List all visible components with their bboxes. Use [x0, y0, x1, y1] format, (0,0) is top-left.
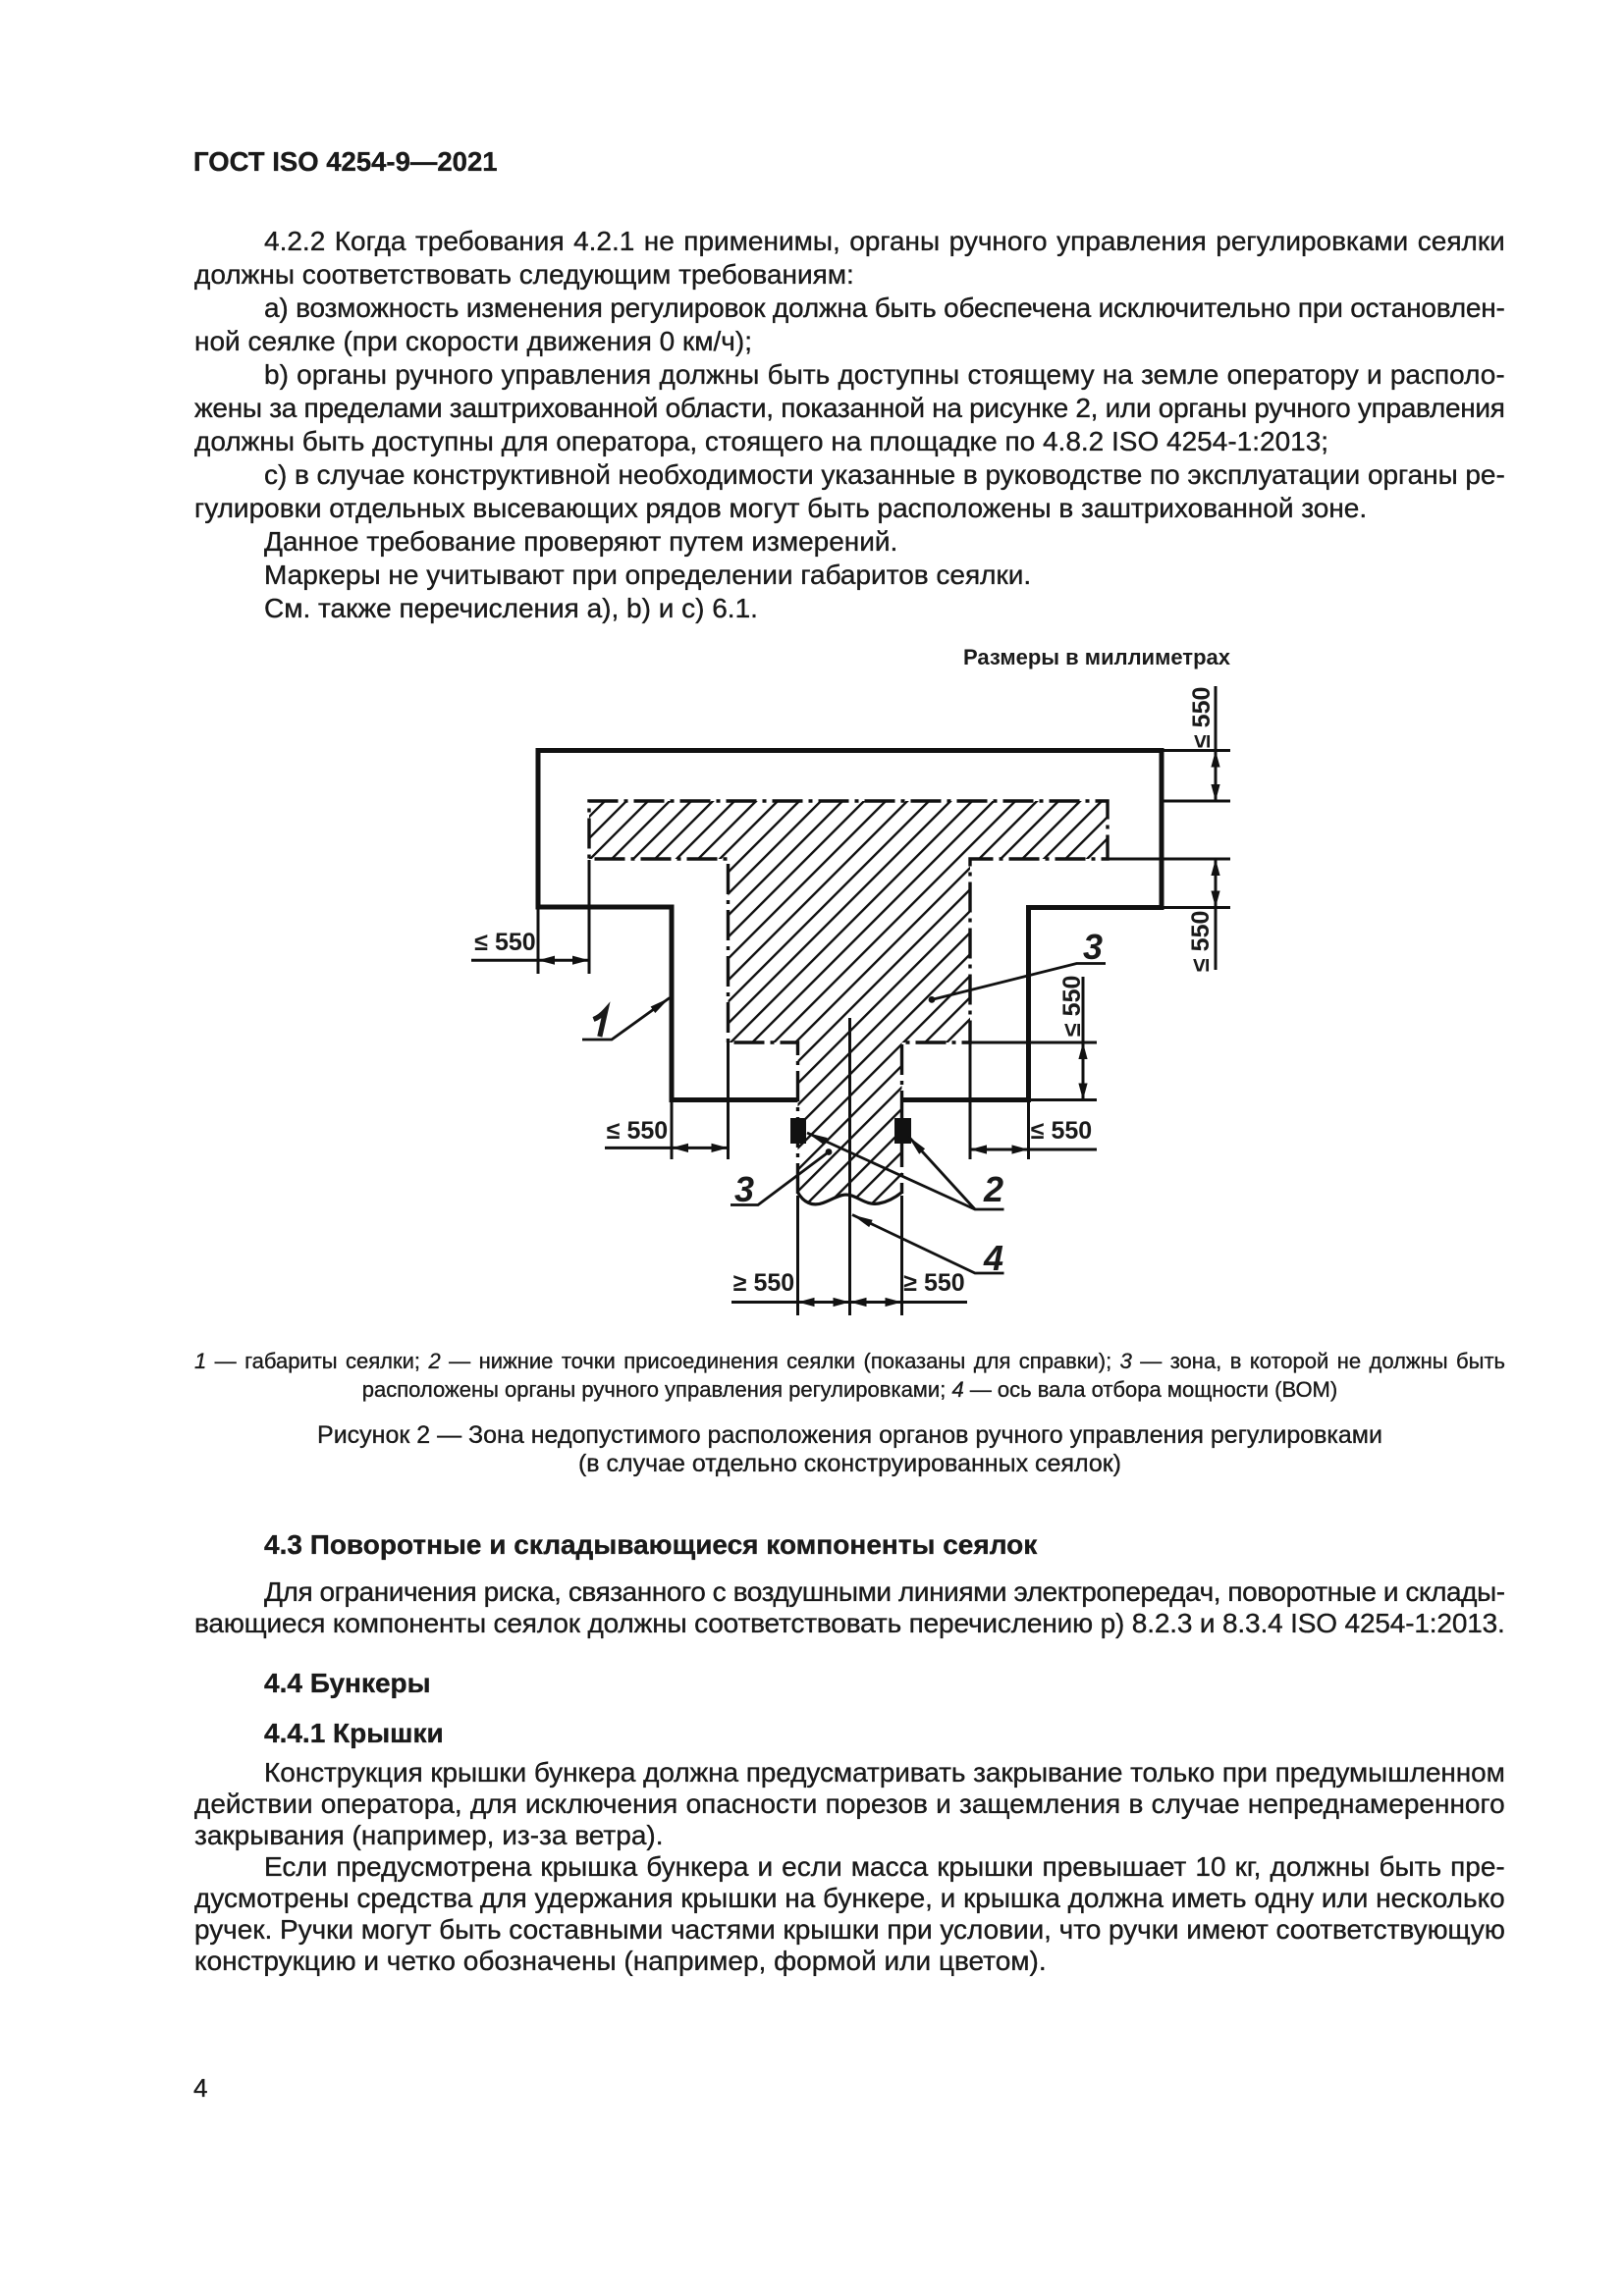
- svg-text:≤ 550: ≤ 550: [607, 1117, 668, 1145]
- svg-text:2: 2: [983, 1169, 1003, 1209]
- svg-text:≤ 550: ≤ 550: [474, 929, 535, 956]
- svg-text:Размеры в миллиметрах: Размеры в миллиметрах: [963, 645, 1231, 669]
- svg-text:4: 4: [983, 1238, 1003, 1278]
- svg-text:≤ 550: ≤ 550: [1031, 1117, 1092, 1145]
- svg-text:≤ 550: ≤ 550: [1187, 911, 1215, 972]
- svg-text:3: 3: [1083, 927, 1103, 967]
- svg-text:≥ 550: ≥ 550: [903, 1269, 964, 1297]
- svg-text:3: 3: [734, 1169, 754, 1209]
- svg-text:≤ 550: ≤ 550: [1058, 976, 1086, 1037]
- svg-text:≥ 550: ≥ 550: [733, 1269, 794, 1297]
- svg-text:≤ 550: ≤ 550: [1188, 687, 1216, 748]
